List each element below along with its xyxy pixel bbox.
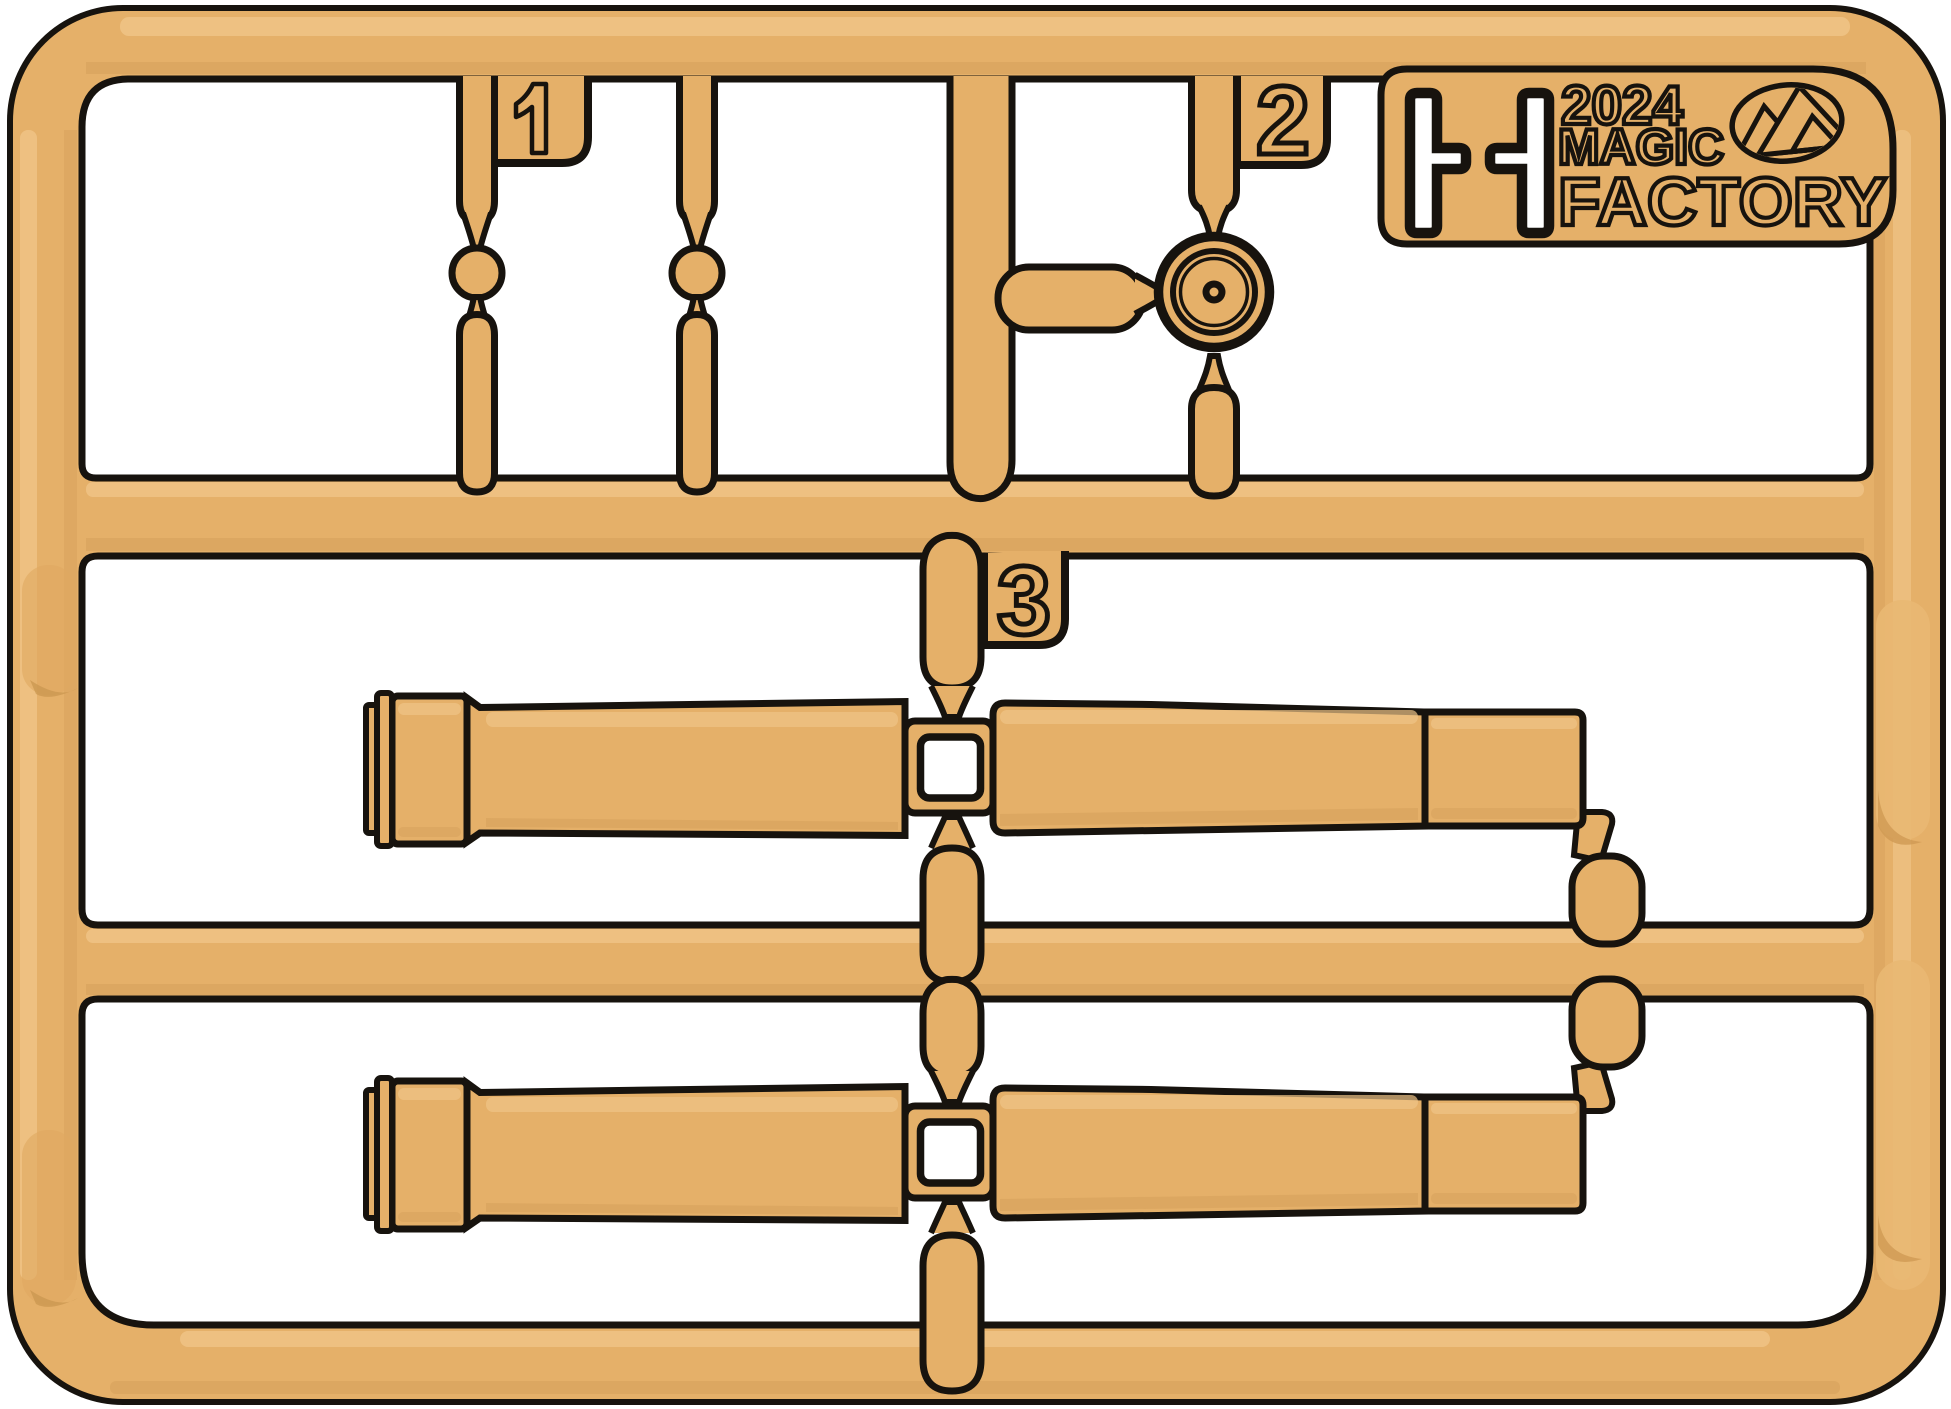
svg-text:FACTORY: FACTORY <box>1558 164 1887 240</box>
svg-text:2: 2 <box>1256 66 1310 175</box>
svg-text:3: 3 <box>997 546 1051 655</box>
